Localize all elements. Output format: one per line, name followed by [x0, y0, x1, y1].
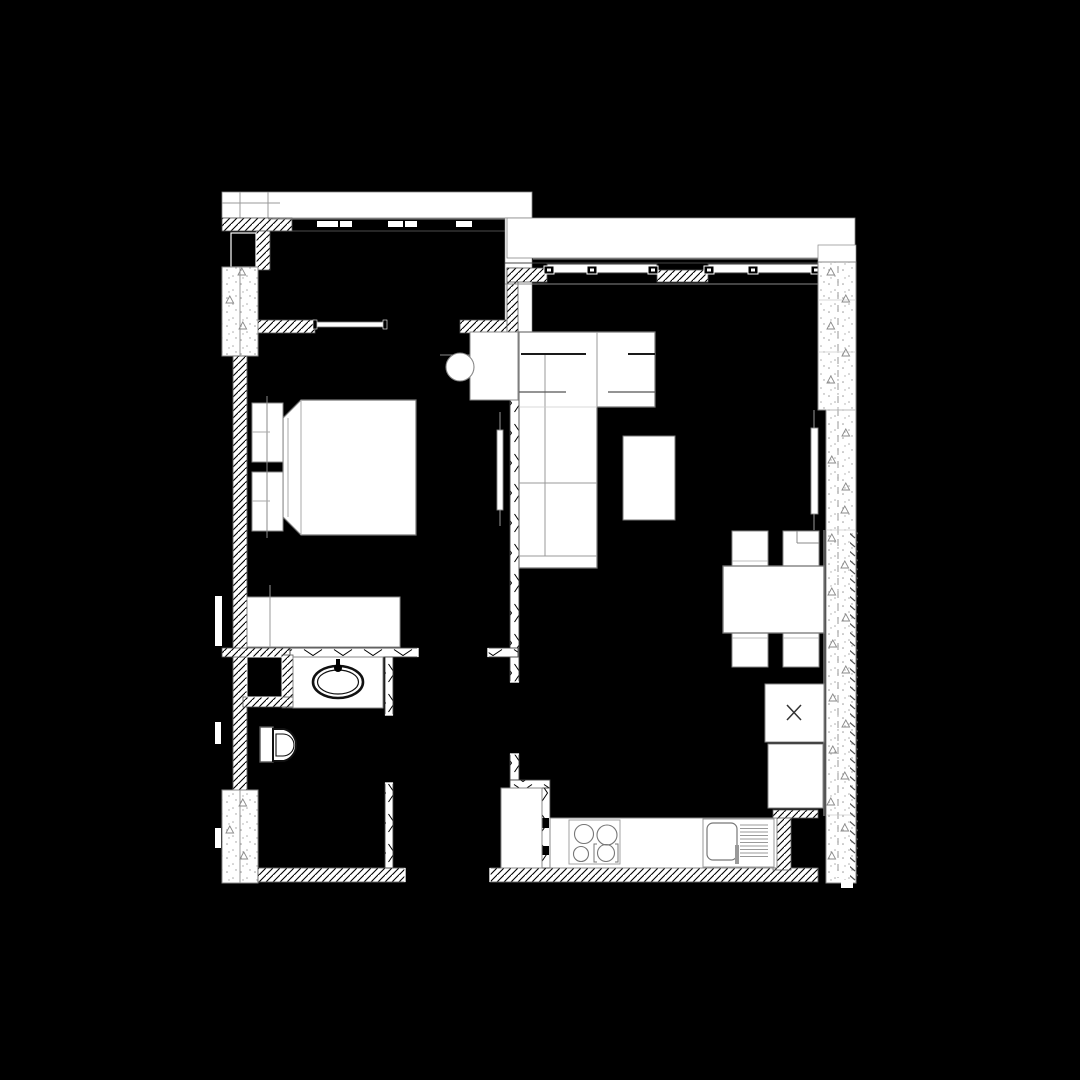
dining-chair-2 — [783, 531, 819, 566]
double-bed — [283, 400, 416, 535]
partition-kitchen-jog — [510, 780, 550, 788]
bathroom-east-wall — [385, 657, 393, 715]
exterior-stub-1 — [215, 596, 222, 646]
balcony-door-lintel — [773, 810, 818, 818]
service-shaft-top — [231, 233, 256, 267]
desk — [470, 332, 518, 400]
refrigerator — [765, 684, 824, 742]
west-wall-hatch — [233, 356, 247, 790]
service-shaft — [247, 657, 282, 697]
floor-plan-stage — [0, 0, 1080, 1080]
sink-faucet — [735, 845, 739, 864]
toilet-tank — [260, 727, 273, 762]
strip-foot — [841, 880, 853, 888]
exterior-stub-2 — [215, 722, 221, 744]
balcony-edge-teeth — [850, 532, 858, 882]
dining-table — [723, 566, 824, 633]
tall-unit — [768, 744, 823, 808]
coffee-table — [623, 436, 675, 520]
bathroom-north-wall-a — [222, 648, 290, 657]
bathroom-north-wall-b — [290, 648, 418, 657]
sliding-door-leaf — [317, 322, 383, 327]
hall-cabinet — [501, 788, 542, 868]
hall-east-wall — [385, 783, 393, 868]
toilet — [260, 727, 296, 762]
exterior-stub-3 — [215, 828, 221, 848]
window-pane-2 — [708, 264, 818, 273]
window-pane-1 — [547, 264, 657, 273]
kitchen-sink — [703, 819, 774, 867]
slab-band-top-right — [507, 218, 855, 258]
radiator-east — [811, 410, 818, 530]
desk-chair — [446, 353, 474, 381]
floor-plan-svg — [0, 0, 1080, 1080]
